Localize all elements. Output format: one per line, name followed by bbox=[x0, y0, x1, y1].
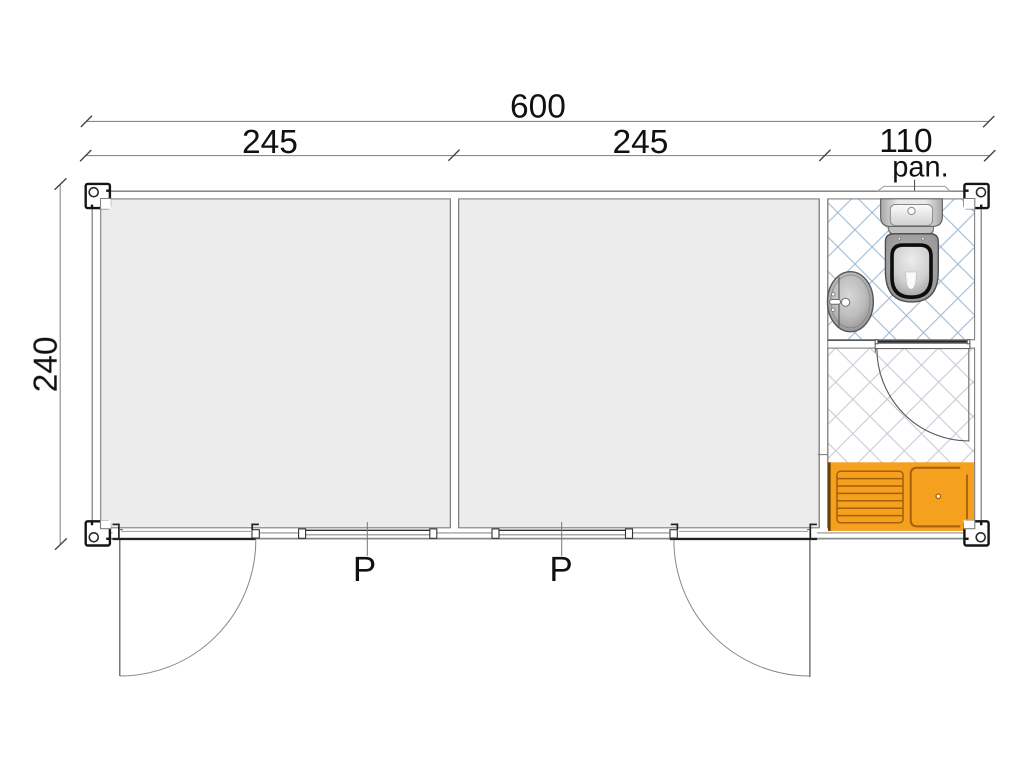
svg-text:P: P bbox=[353, 550, 376, 589]
svg-text:245: 245 bbox=[242, 124, 298, 161]
svg-text:pan.: pan. bbox=[892, 152, 948, 184]
svg-text:245: 245 bbox=[613, 124, 669, 161]
svg-text:600: 600 bbox=[510, 89, 566, 126]
svg-text:P: P bbox=[549, 550, 572, 589]
svg-text:240: 240 bbox=[28, 336, 65, 392]
